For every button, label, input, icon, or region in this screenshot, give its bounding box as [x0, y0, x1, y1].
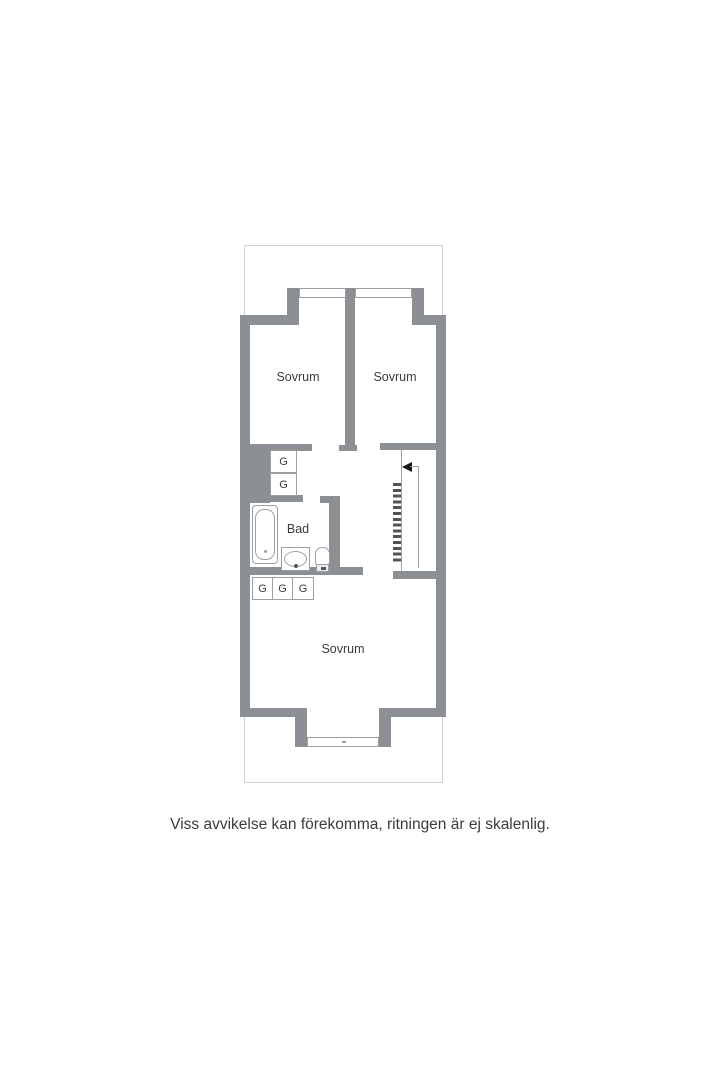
- wall-bedroom-divider: [345, 288, 355, 445]
- staircase-treads: [393, 483, 401, 564]
- wardrobe-label: G: [278, 583, 287, 595]
- wardrobe-label: G: [258, 583, 267, 595]
- wall-exterior-left: [240, 315, 250, 717]
- toilet-tank-mark: [321, 567, 326, 570]
- wall-exterior-right: [436, 315, 446, 717]
- stair-direction-arrow-icon: [402, 462, 412, 472]
- wall-bathroom-right: [329, 496, 340, 575]
- sink-icon: [281, 547, 310, 571]
- room-label-bedroom-bottom: Sovrum: [303, 641, 383, 657]
- wardrobe-label: G: [279, 456, 288, 468]
- room-label-bedroom-top-left: Sovrum: [258, 369, 338, 385]
- wall-bottom-bay-right: [379, 708, 391, 747]
- wall-stair-bottom: [393, 571, 446, 579]
- room-label-bedroom-top-right: Sovrum: [355, 369, 435, 385]
- wall-bathroom-top: [240, 495, 303, 502]
- window-center-tick: [342, 741, 346, 743]
- toilet-tank: [316, 564, 329, 572]
- wardrobe-hall-1: G: [270, 450, 297, 473]
- floor-plan-page: G G G G G Sovrum Sovrum Bad Sovrum Viss …: [0, 0, 720, 1080]
- window-bedroom-top-right: [355, 288, 412, 298]
- wardrobe-hall-2: G: [270, 473, 297, 496]
- sink-tap: [294, 564, 298, 568]
- wall-bottom-bay-left: [295, 708, 307, 747]
- bathtub-drain: [264, 550, 267, 553]
- room-label-bathroom: Bad: [268, 521, 328, 537]
- wardrobe-bedroom-1: G: [252, 577, 273, 600]
- stair-arrow-tail-vertical: [418, 466, 419, 568]
- window-bedroom-bottom: [307, 737, 379, 747]
- window-bedroom-top-left: [299, 288, 346, 298]
- wardrobe-label: G: [279, 479, 288, 491]
- wall-stair-top: [380, 443, 446, 450]
- wardrobe-bedroom-2: G: [272, 577, 293, 600]
- scale-disclaimer: Viss avvikelse kan förekomma, ritningen …: [0, 816, 720, 834]
- wardrobe-label: G: [299, 583, 308, 595]
- wardrobe-bedroom-3: G: [292, 577, 314, 600]
- wall-bedroom-divider-cap: [339, 445, 357, 451]
